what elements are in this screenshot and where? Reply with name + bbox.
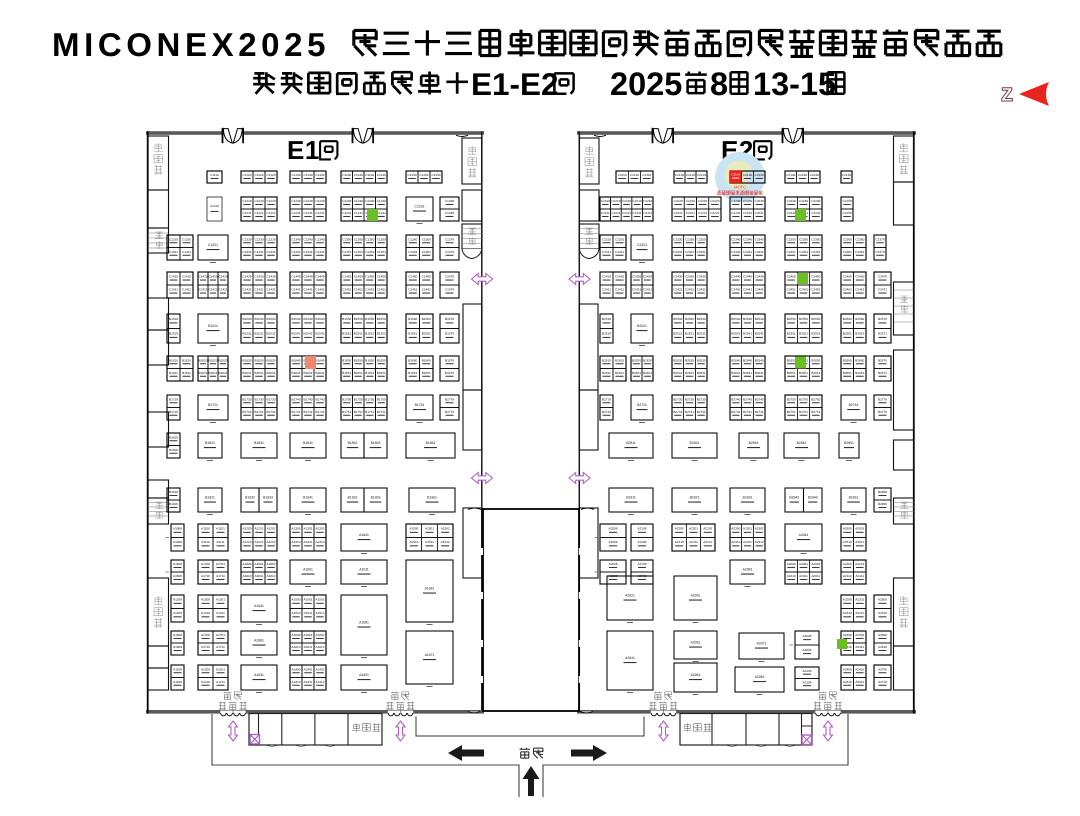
svg-text:A1010: A1010 [292, 645, 301, 649]
svg-text:B2931: B2931 [743, 496, 753, 500]
svg-text:C2410: C2410 [602, 274, 611, 278]
svg-text:C2431: C2431 [697, 287, 706, 291]
svg-text:C2340: C2340 [731, 237, 740, 241]
svg-text:B2670: B2670 [878, 358, 887, 362]
svg-text:C2411: C2411 [602, 287, 611, 291]
svg-text:C1231: C1231 [303, 211, 312, 215]
svg-text:A2201: A2201 [689, 527, 698, 531]
svg-text:B1678: B1678 [445, 358, 454, 362]
svg-text:B2731: B2731 [697, 410, 706, 414]
svg-text:B2911: B2911 [626, 496, 636, 500]
svg-text:C2410: C2410 [615, 274, 624, 278]
svg-text:A2201: A2201 [855, 598, 864, 602]
svg-text:C1350: C1350 [354, 237, 363, 241]
svg-text:B2641: B2641 [731, 371, 740, 375]
svg-text:C2350: C2350 [799, 237, 808, 241]
svg-text:B2841: B2841 [797, 441, 807, 445]
svg-text:B2531: B2531 [697, 332, 706, 336]
svg-text:B2550: B2550 [811, 317, 820, 321]
svg-text:C1330: C1330 [242, 237, 251, 241]
svg-text:A1609: A1609 [173, 574, 182, 578]
svg-text:B2521: B2521 [637, 324, 647, 328]
svg-text:B2730: B2730 [685, 397, 694, 401]
svg-text:A1108: A1108 [173, 667, 182, 671]
svg-text:C2211: C2211 [601, 211, 610, 215]
svg-text:C1441: C1441 [315, 287, 324, 291]
svg-text:B2540: B2540 [731, 317, 740, 321]
svg-text:A1200: A1200 [201, 667, 210, 671]
svg-text:A1002: A1002 [316, 633, 325, 637]
svg-text:B1952: B1952 [348, 496, 358, 500]
svg-text:C1460: C1460 [422, 274, 431, 278]
svg-text:B2560: B2560 [843, 317, 852, 321]
svg-text:A2200: A2200 [675, 527, 684, 531]
svg-text:C2330: C2330 [697, 237, 706, 241]
svg-text:B1761: B1761 [415, 403, 425, 407]
svg-text:A1001: A1001 [303, 568, 313, 572]
svg-text:A2311: A2311 [743, 540, 752, 544]
svg-text:B2943: B2943 [808, 496, 818, 500]
svg-text:B2750: B2750 [811, 397, 820, 401]
svg-text:C2430: C2430 [673, 274, 682, 278]
svg-text:B2640: B2640 [755, 358, 764, 362]
svg-text:C2440: C2440 [731, 274, 740, 278]
svg-text:B1741: B1741 [316, 410, 325, 414]
svg-text:A1210: A1210 [201, 680, 210, 684]
svg-text:B2660: B2660 [843, 358, 852, 362]
svg-text:B1750: B1750 [365, 397, 374, 401]
svg-text:B2631: B2631 [685, 371, 694, 375]
svg-text:B1541: B1541 [316, 332, 325, 336]
svg-text:C1230: C1230 [315, 199, 324, 203]
svg-text:B2951: B2951 [849, 496, 859, 500]
svg-text:B2660: B2660 [855, 358, 864, 362]
svg-text:B1540: B1540 [304, 317, 313, 321]
svg-text:A2108: A2108 [638, 527, 647, 531]
svg-text:B2630: B2630 [673, 358, 682, 362]
svg-text:C2130: C2130 [755, 173, 764, 177]
svg-text:B1551: B1551 [365, 332, 374, 336]
svg-text:B1750: B1750 [377, 397, 386, 401]
svg-text:C1431: C1431 [266, 287, 275, 291]
svg-text:A1012: A1012 [316, 645, 325, 649]
svg-text:B1621: B1621 [199, 371, 208, 375]
svg-text:B2561: B2561 [855, 332, 864, 336]
svg-text:C1430: C1430 [266, 274, 275, 278]
svg-text:C1130: C1130 [304, 173, 313, 177]
svg-text:B1933: B1933 [263, 496, 273, 500]
svg-text:C2451: C2451 [799, 287, 808, 291]
svg-text:C1240: C1240 [377, 199, 386, 203]
svg-text:C1451: C1451 [342, 287, 351, 291]
svg-text:B1932: B1932 [245, 496, 255, 500]
svg-text:B1650: B1650 [354, 358, 363, 362]
svg-text:C1310: C1310 [182, 237, 191, 241]
svg-text:C1420: C1420 [208, 274, 217, 278]
svg-text:B1611: B1611 [182, 371, 191, 375]
svg-text:B1541: B1541 [292, 332, 301, 336]
svg-text:A2400: A2400 [843, 667, 852, 671]
svg-text:B1621: B1621 [209, 371, 218, 375]
svg-text:C1251: C1251 [415, 205, 425, 209]
svg-text:A2311: A2311 [855, 645, 864, 649]
svg-text:B2630: B2630 [697, 358, 706, 362]
svg-text:A1001: A1001 [304, 633, 313, 637]
svg-text:C2210: C2210 [622, 199, 631, 203]
svg-text:B1550: B1550 [342, 317, 351, 321]
svg-text:C1440: C1440 [291, 274, 300, 278]
svg-text:B1750: B1750 [354, 397, 363, 401]
svg-text:B1751: B1751 [354, 410, 363, 414]
svg-text:C1450: C1450 [354, 274, 363, 278]
svg-text:B2531: B2531 [673, 332, 682, 336]
svg-text:C2150: C2150 [842, 173, 851, 177]
svg-text:C2311: C2311 [615, 250, 624, 254]
svg-text:B2751: B2751 [811, 410, 820, 414]
svg-text:A2411: A2411 [855, 680, 864, 684]
svg-text:B2570: B2570 [878, 317, 887, 321]
svg-text:C1450: C1450 [365, 274, 374, 278]
svg-text:A2081: A2081 [743, 568, 753, 572]
svg-text:B1631: B1631 [267, 371, 276, 375]
svg-text:C1241: C1241 [342, 211, 351, 215]
svg-text:C1120: C1120 [243, 173, 252, 177]
svg-text:B1941: B1941 [303, 496, 313, 500]
svg-text:C2360: C2360 [855, 237, 864, 241]
svg-text:C2471: C2471 [878, 287, 887, 291]
svg-text:A2008: A2008 [609, 527, 618, 531]
svg-text:C2378: C2378 [875, 237, 884, 241]
svg-text:B2560: B2560 [855, 317, 864, 321]
svg-text:C1220: C1220 [254, 199, 263, 203]
svg-text:A1800: A1800 [243, 562, 252, 566]
svg-text:B1750: B1750 [342, 397, 351, 401]
svg-text:B2551: B2551 [799, 332, 808, 336]
svg-text:C1331: C1331 [242, 250, 251, 254]
svg-text:B1661: B1661 [408, 371, 417, 375]
svg-text:B1611: B1611 [169, 371, 178, 375]
svg-text:A1031: A1031 [254, 673, 264, 677]
svg-text:C2120: C2120 [686, 173, 695, 177]
svg-text:B1821: B1821 [205, 441, 215, 445]
svg-text:A1111: A1111 [216, 540, 225, 544]
svg-text:C2211: C2211 [611, 211, 620, 215]
svg-text:B1918: B1918 [169, 490, 178, 494]
svg-text:A1411: A1411 [304, 680, 313, 684]
svg-text:C1430: C1430 [254, 274, 263, 278]
svg-text:A1312: A1312 [316, 540, 325, 544]
svg-text:B2778: B2778 [878, 397, 887, 401]
svg-text:C1341: C1341 [303, 250, 312, 254]
svg-text:A1410: A1410 [292, 680, 301, 684]
svg-text:A2510: A2510 [878, 611, 887, 615]
svg-text:C2431: C2431 [685, 287, 694, 291]
svg-text:C1451: C1451 [365, 287, 374, 291]
svg-text:A1081: A1081 [254, 639, 264, 643]
svg-text:C1450: C1450 [342, 274, 351, 278]
svg-text:C1350: C1350 [365, 237, 374, 241]
svg-text:A2301: A2301 [855, 633, 864, 637]
svg-text:A1110: A1110 [201, 540, 210, 544]
svg-text:A1300: A1300 [201, 598, 210, 602]
svg-text:B1740: B1740 [304, 397, 313, 401]
svg-text:B1561: B1561 [422, 332, 431, 336]
svg-text:A1300: A1300 [292, 527, 301, 531]
svg-text:B2541: B2541 [731, 332, 740, 336]
svg-text:C1130: C1130 [292, 173, 301, 177]
svg-text:C1411: C1411 [182, 287, 191, 291]
svg-text:C1321: C1321 [208, 243, 218, 247]
svg-text:B1679: B1679 [445, 371, 454, 375]
svg-text:A1801: A1801 [255, 562, 264, 566]
svg-text:C2441: C2441 [755, 287, 764, 291]
svg-text:C2451: C2451 [811, 287, 820, 291]
svg-text:A1211: A1211 [255, 540, 264, 544]
svg-text:C2220: C2220 [686, 199, 695, 203]
svg-text:C2379: C2379 [875, 250, 884, 254]
svg-text:B2968: B2968 [878, 490, 887, 494]
svg-text:C1230: C1230 [291, 199, 300, 203]
svg-text:A1310: A1310 [292, 540, 301, 544]
svg-text:C1360: C1360 [422, 237, 431, 241]
svg-text:C1440: C1440 [315, 274, 324, 278]
svg-text:C1221: C1221 [266, 211, 275, 215]
svg-text:C2310: C2310 [602, 237, 611, 241]
svg-text:A1710: A1710 [201, 645, 210, 649]
svg-text:B1861: B1861 [426, 441, 436, 445]
svg-text:B1560: B1560 [422, 317, 431, 321]
svg-text:A2081: A2081 [755, 675, 765, 679]
svg-text:A2011: A2011 [799, 574, 808, 578]
svg-text:A2031: A2031 [691, 594, 701, 598]
svg-text:B2550: B2550 [787, 317, 796, 321]
svg-text:C2341: C2341 [743, 250, 752, 254]
svg-text:B1718: B1718 [169, 397, 178, 401]
svg-text:A1608: A1608 [173, 633, 182, 637]
svg-text:C2258: C2258 [842, 199, 851, 203]
svg-text:C2350: C2350 [787, 237, 796, 241]
svg-text:C2331: C2331 [697, 250, 706, 254]
svg-text:B2620: B2620 [643, 358, 652, 362]
svg-text:C2340: C2340 [755, 237, 764, 241]
svg-text:C1311: C1311 [169, 250, 178, 254]
svg-text:B1961: B1961 [427, 496, 437, 500]
svg-text:A2041: A2041 [799, 533, 809, 537]
svg-text:A1711: A1711 [216, 574, 225, 578]
svg-text:A1209: A1209 [173, 611, 182, 615]
svg-text:C2440: C2440 [743, 274, 752, 278]
svg-text:B2621: B2621 [643, 371, 652, 375]
svg-text:B1540: B1540 [292, 317, 301, 321]
svg-text:B2571: B2571 [878, 332, 887, 336]
svg-text:MOTC: MOTC [734, 185, 746, 190]
svg-text:A2510: A2510 [843, 540, 852, 544]
svg-text:A2001: A2001 [799, 562, 808, 566]
svg-text:C2230: C2230 [743, 199, 752, 203]
svg-text:B2631: B2631 [673, 371, 682, 375]
svg-text:C1479: C1479 [445, 287, 454, 291]
svg-text:B1610: B1610 [182, 358, 191, 362]
svg-text:A1500: A1500 [292, 598, 301, 602]
svg-text:A2051: A2051 [691, 641, 701, 645]
svg-text:A2210: A2210 [843, 611, 852, 615]
svg-text:A2410: A2410 [843, 680, 852, 684]
svg-text:C2210: C2210 [611, 199, 620, 203]
svg-text:C2441: C2441 [743, 287, 752, 291]
svg-text:B1651: B1651 [377, 371, 386, 375]
svg-text:B2530: B2530 [685, 317, 694, 321]
svg-text:C2330: C2330 [685, 237, 694, 241]
svg-text:C1351: C1351 [354, 250, 363, 254]
svg-text:C1361: C1361 [422, 250, 431, 254]
svg-text:C1341: C1341 [291, 250, 300, 254]
svg-text:C2211: C2211 [622, 211, 631, 215]
svg-text:A1512: A1512 [441, 540, 450, 544]
svg-text:C1341: C1341 [315, 250, 324, 254]
svg-text:A1402: A1402 [316, 667, 325, 671]
svg-text:B2530: B2530 [673, 317, 682, 321]
svg-text:C2231: C2231 [731, 211, 740, 215]
svg-text:C2220: C2220 [710, 199, 719, 203]
svg-text:B1531: B1531 [255, 332, 264, 336]
svg-text:A2010: A2010 [787, 574, 796, 578]
svg-text:C1150: C1150 [432, 173, 441, 177]
svg-text:C2221: C2221 [674, 211, 683, 215]
svg-text:C1330: C1330 [266, 237, 275, 241]
svg-text:C1411: C1411 [169, 287, 178, 291]
svg-text:C2211: C2211 [643, 211, 652, 215]
svg-text:B1730: B1730 [267, 397, 276, 401]
svg-text:B1550: B1550 [354, 317, 363, 321]
svg-text:C1269: C1269 [445, 211, 454, 215]
svg-text:A1301: A1301 [304, 527, 313, 531]
svg-text:B1551: B1551 [377, 332, 386, 336]
svg-text:C2140: C2140 [810, 173, 819, 177]
svg-text:B1519: B1519 [169, 332, 178, 336]
svg-text:C2210: C2210 [633, 199, 642, 203]
svg-text:A1700: A1700 [201, 562, 210, 566]
svg-text:13-15: 13-15 [753, 66, 836, 102]
svg-text:B1640: B1640 [292, 358, 301, 362]
svg-text:C1120: C1120 [255, 173, 264, 177]
svg-text:C2470: C2470 [878, 274, 887, 278]
svg-text:A1041: A1041 [254, 604, 264, 608]
svg-text:C2110: C2110 [642, 173, 651, 177]
svg-text:B1751: B1751 [377, 410, 386, 414]
svg-text:C2450: C2450 [787, 274, 796, 278]
svg-text:C2220: C2220 [674, 199, 683, 203]
svg-text:B1650: B1650 [365, 358, 374, 362]
svg-text:C1310: C1310 [169, 237, 178, 241]
svg-text:C2110: C2110 [618, 173, 627, 177]
svg-text:C2231: C2231 [755, 211, 764, 215]
svg-text:A1000: A1000 [292, 633, 301, 637]
svg-text:E1: E1 [287, 135, 320, 165]
svg-text:B2631: B2631 [697, 371, 706, 375]
svg-text:B2811: B2811 [626, 441, 636, 445]
svg-text:C1421: C1421 [218, 287, 227, 291]
svg-text:A1608: A1608 [173, 562, 182, 566]
svg-text:C1431: C1431 [242, 287, 251, 291]
svg-text:B2740: B2740 [743, 397, 752, 401]
svg-text:C2461: C2461 [855, 287, 864, 291]
svg-text:C1420: C1420 [218, 274, 227, 278]
svg-text:B2969: B2969 [878, 502, 887, 506]
svg-text:A2708: A2708 [638, 562, 647, 566]
svg-text:A2021: A2021 [625, 594, 635, 598]
svg-text:C2140: C2140 [798, 173, 807, 177]
svg-text:B2942: B2942 [789, 496, 799, 500]
svg-text:B1531: B1531 [267, 332, 276, 336]
svg-text:C1140: C1140 [342, 173, 351, 177]
svg-text:8: 8 [710, 66, 728, 102]
svg-text:C2420: C2420 [643, 274, 652, 278]
svg-text:C2321: C2321 [637, 243, 647, 247]
svg-text:MICONEX2025: MICONEX2025 [52, 26, 330, 63]
svg-text:B2751: B2751 [799, 410, 808, 414]
svg-text:C1421: C1421 [208, 287, 217, 291]
svg-text:B1630: B1630 [267, 358, 276, 362]
svg-text:B2851: B2851 [844, 441, 854, 445]
svg-text:C2110: C2110 [630, 173, 639, 177]
svg-text:B1579: B1579 [445, 332, 454, 336]
svg-text:A2100: A2100 [843, 562, 852, 566]
svg-text:C1431: C1431 [254, 287, 263, 291]
svg-text:C1410: C1410 [182, 274, 191, 278]
svg-text:A2041: A2041 [625, 656, 635, 660]
svg-text:B2561: B2561 [843, 332, 852, 336]
svg-text:B1620: B1620 [219, 358, 228, 362]
svg-text:B1530: B1530 [255, 317, 264, 321]
svg-text:C2451: C2451 [787, 287, 796, 291]
svg-text:C1340: C1340 [291, 237, 300, 241]
svg-text:A1201: A1201 [216, 667, 225, 671]
svg-text:B2641: B2641 [755, 371, 764, 375]
svg-text:B1731: B1731 [267, 410, 276, 414]
svg-text:B1751: B1751 [342, 410, 351, 414]
svg-text:B1953: B1953 [371, 496, 381, 500]
svg-text:A2002: A2002 [811, 562, 820, 566]
svg-text:B1521: B1521 [208, 324, 218, 328]
svg-text:B2650: B2650 [811, 358, 820, 362]
svg-text:C1240: C1240 [342, 199, 351, 203]
svg-text:C2430: C2430 [685, 274, 694, 278]
svg-text:B2741: B2741 [731, 410, 740, 414]
svg-text:B1660: B1660 [422, 358, 431, 362]
svg-text:C2341: C2341 [731, 250, 740, 254]
svg-text:C2210: C2210 [643, 199, 652, 203]
svg-text:C2220: C2220 [698, 199, 707, 203]
svg-text:B2518: B2518 [602, 317, 611, 321]
svg-text:B1551: B1551 [354, 332, 363, 336]
svg-text:C1430: C1430 [242, 274, 251, 278]
svg-text:B2519: B2519 [602, 332, 611, 336]
svg-text:A2211: A2211 [689, 540, 698, 544]
svg-text:A2110: A2110 [843, 574, 852, 578]
svg-text:B1740: B1740 [316, 397, 325, 401]
svg-text:C1361: C1361 [408, 250, 417, 254]
svg-text:C2361: C2361 [843, 250, 852, 254]
svg-text:C2120: C2120 [675, 173, 684, 177]
svg-text:B1610: B1610 [169, 358, 178, 362]
svg-text:C2420: C2420 [632, 274, 641, 278]
svg-text:B2730: B2730 [697, 397, 706, 401]
svg-text:C1461: C1461 [408, 287, 417, 291]
svg-text:A1051: A1051 [359, 673, 369, 677]
svg-text:A1700: A1700 [201, 633, 210, 637]
svg-text:A2109: A2109 [803, 680, 812, 684]
svg-text:B2651: B2651 [799, 371, 808, 375]
